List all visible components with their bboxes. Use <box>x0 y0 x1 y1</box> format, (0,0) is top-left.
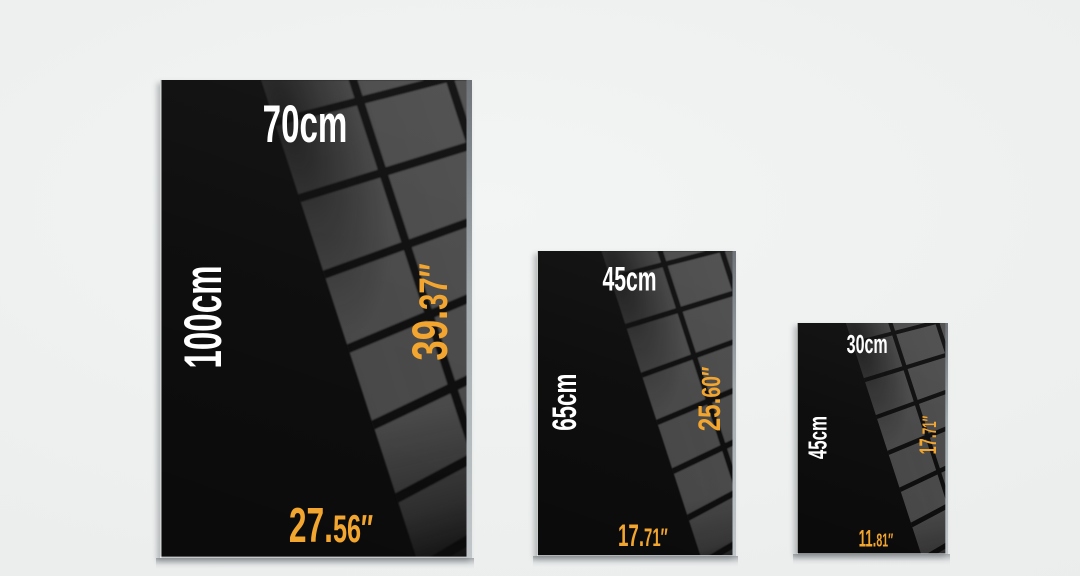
svg-text:45cm: 45cm <box>803 416 833 459</box>
svg-text:65cm: 65cm <box>546 374 584 431</box>
svg-text:70cm: 70cm <box>263 95 348 154</box>
svg-text:25.60″: 25.60″ <box>692 367 728 432</box>
svg-text:45cm: 45cm <box>602 259 656 297</box>
svg-text:30cm: 30cm <box>847 330 888 359</box>
svg-text:11.81″: 11.81″ <box>859 527 894 553</box>
svg-text:39.37″: 39.37″ <box>402 263 458 360</box>
svg-text:100cm: 100cm <box>174 265 233 368</box>
svg-text:17.71″: 17.71″ <box>618 519 668 553</box>
svg-text:27.56″: 27.56″ <box>289 498 374 553</box>
